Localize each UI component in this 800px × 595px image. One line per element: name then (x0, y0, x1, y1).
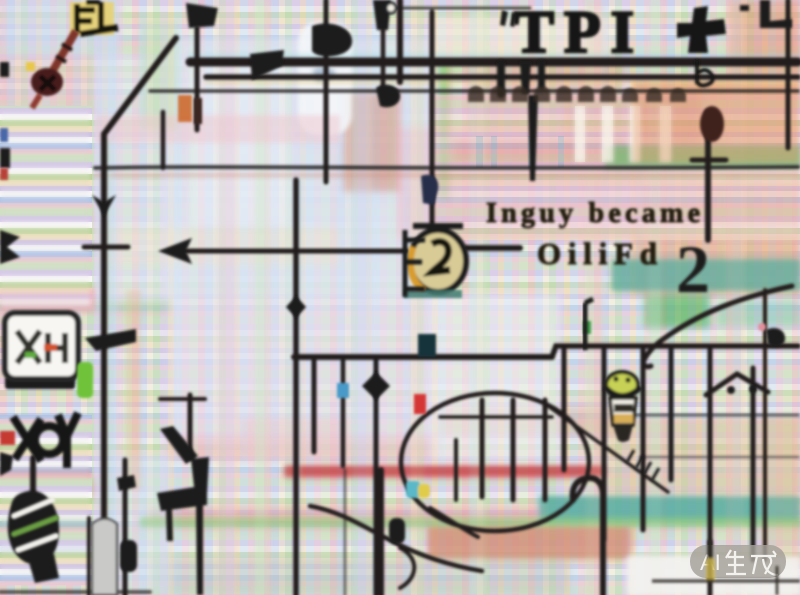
svg-text:TPI: TPI (514, 0, 644, 65)
svg-text:2: 2 (676, 231, 710, 307)
